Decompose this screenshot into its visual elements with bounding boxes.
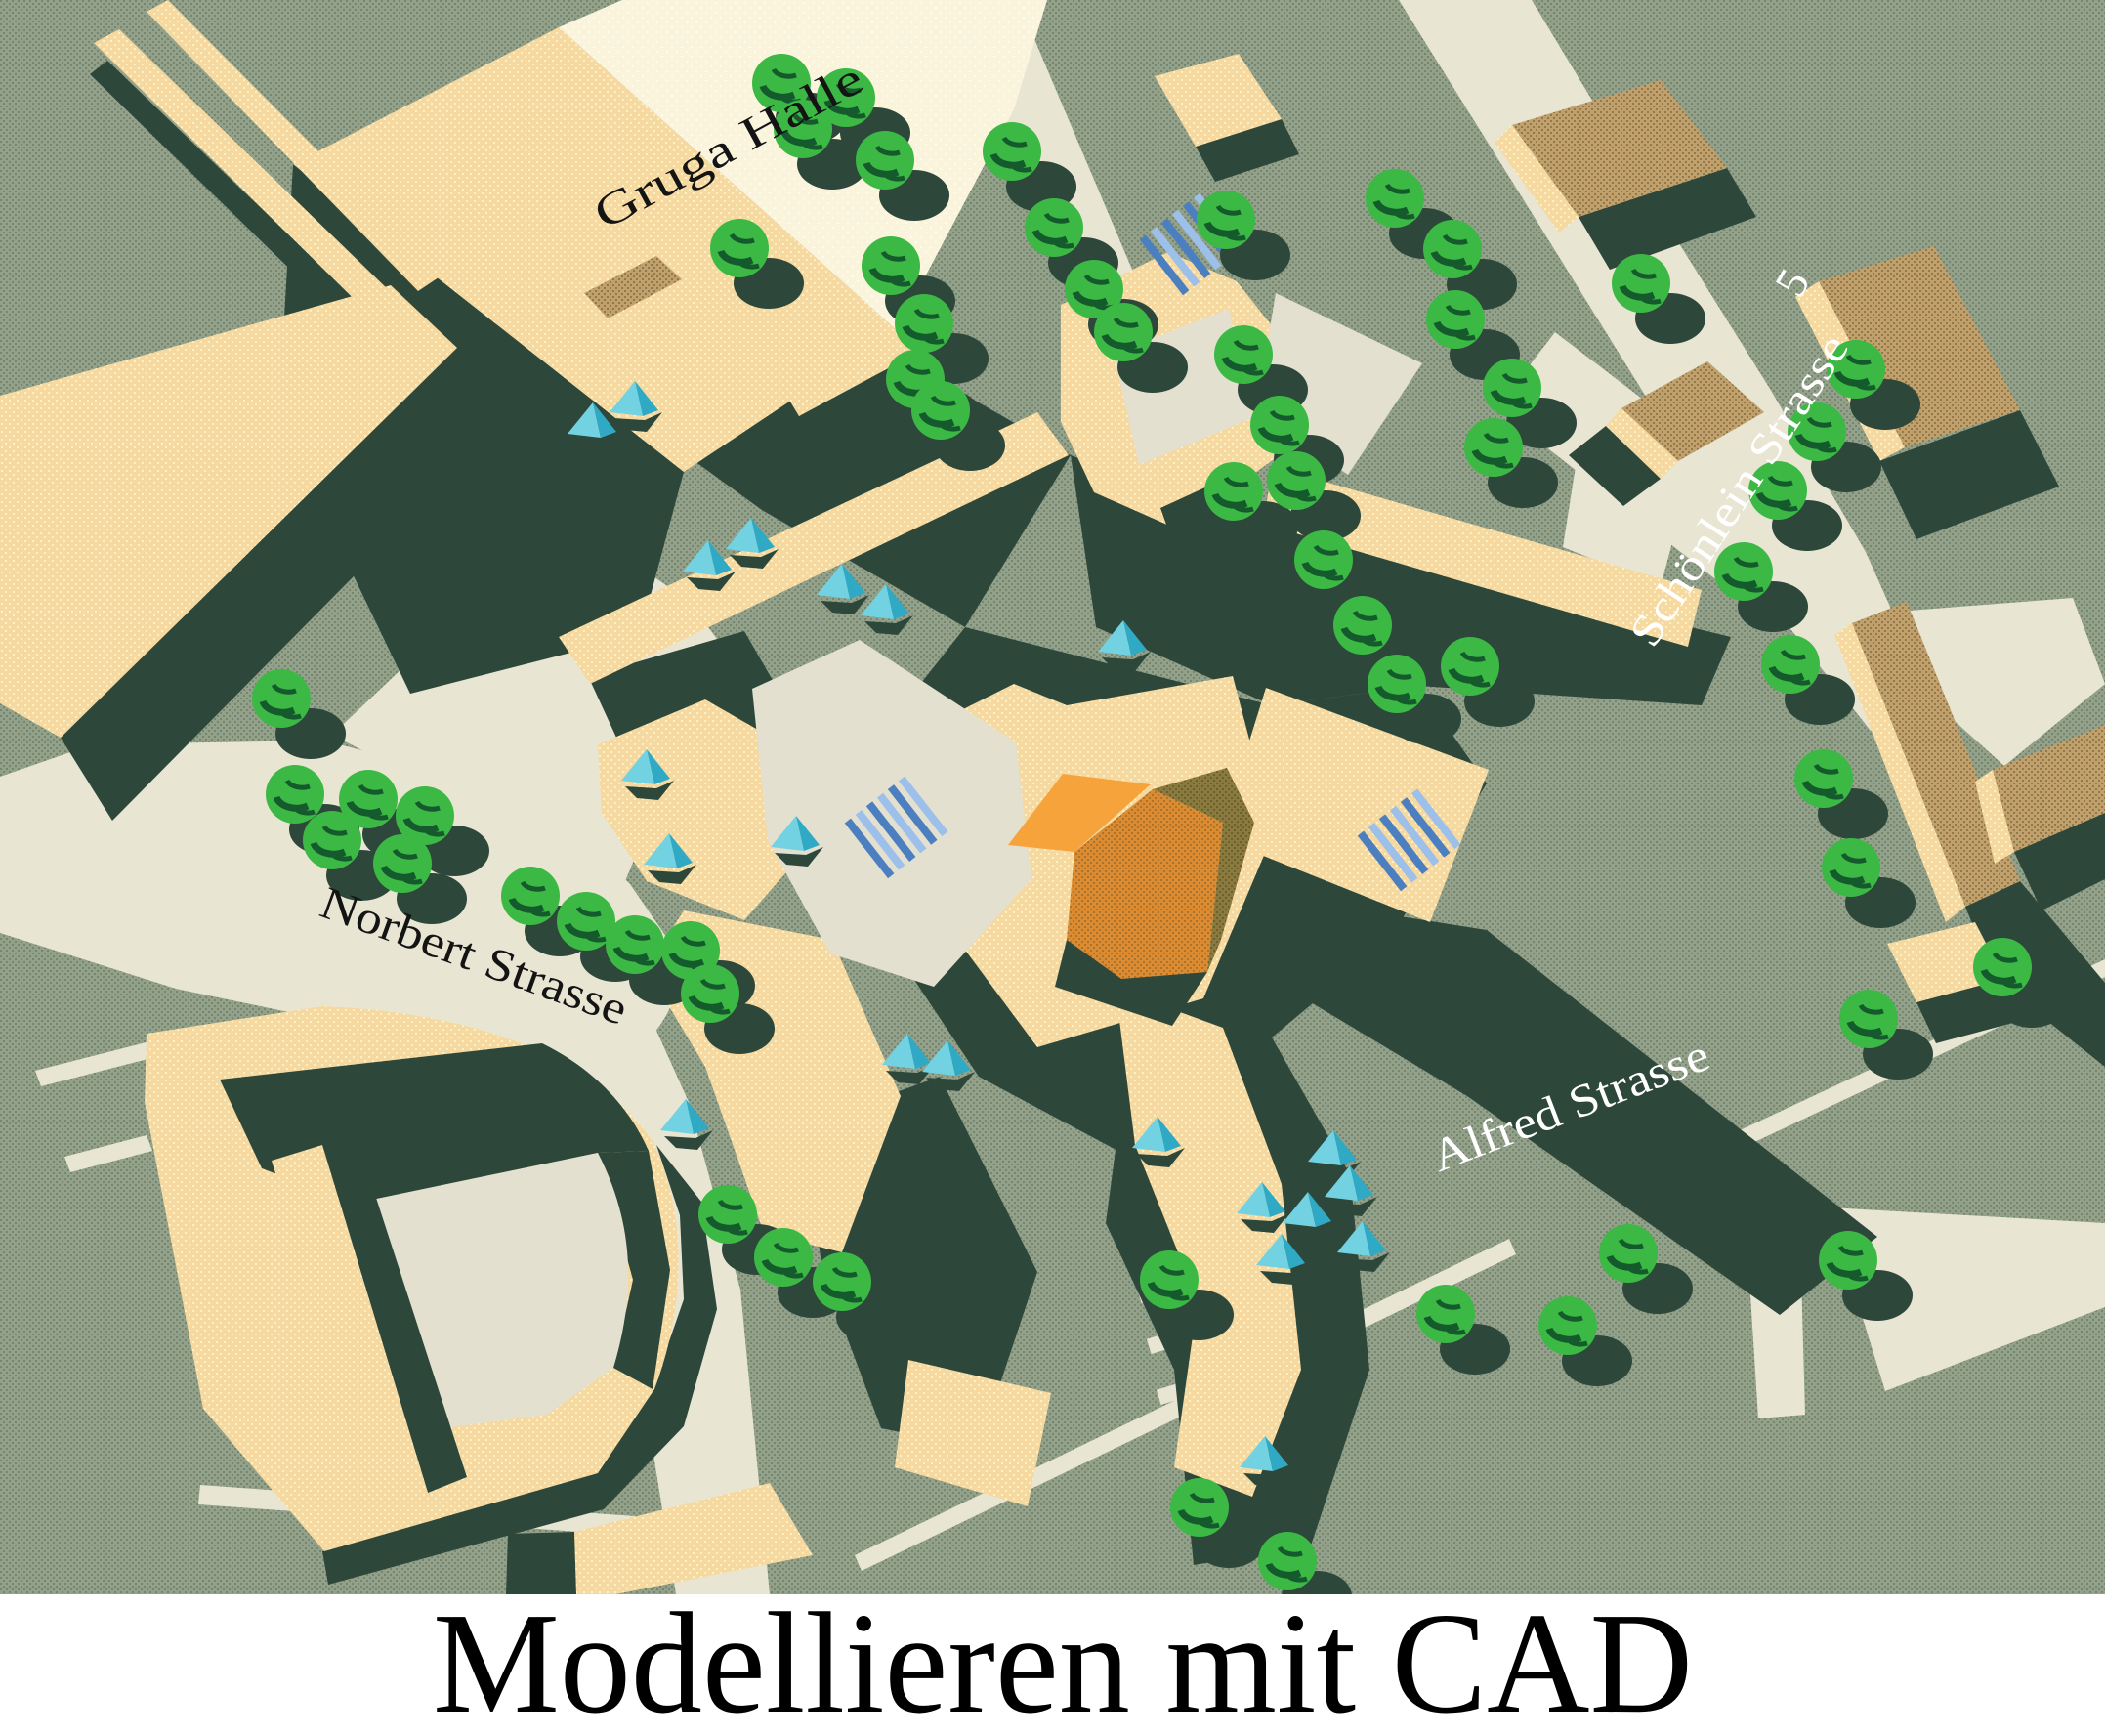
cad-rendering-page: Gruga Halle Norbert Strasse Alfred Stras… [0,0,2105,1736]
caption-area: Modellieren mit CAD [0,1584,2105,1736]
caption-title: Modellieren mit CAD [433,1584,1693,1736]
city-model-canvas: Gruga Halle Norbert Strasse Alfred Stras… [0,0,2105,1736]
